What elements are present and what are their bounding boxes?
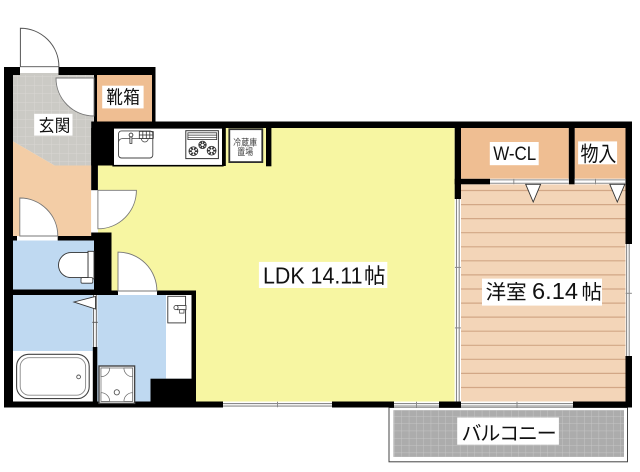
svg-text:LDK 14.11: LDK 14.11 <box>263 262 363 288</box>
svg-text:W-CL: W-CL <box>493 143 536 165</box>
svg-text:6.14: 6.14 <box>532 278 578 304</box>
